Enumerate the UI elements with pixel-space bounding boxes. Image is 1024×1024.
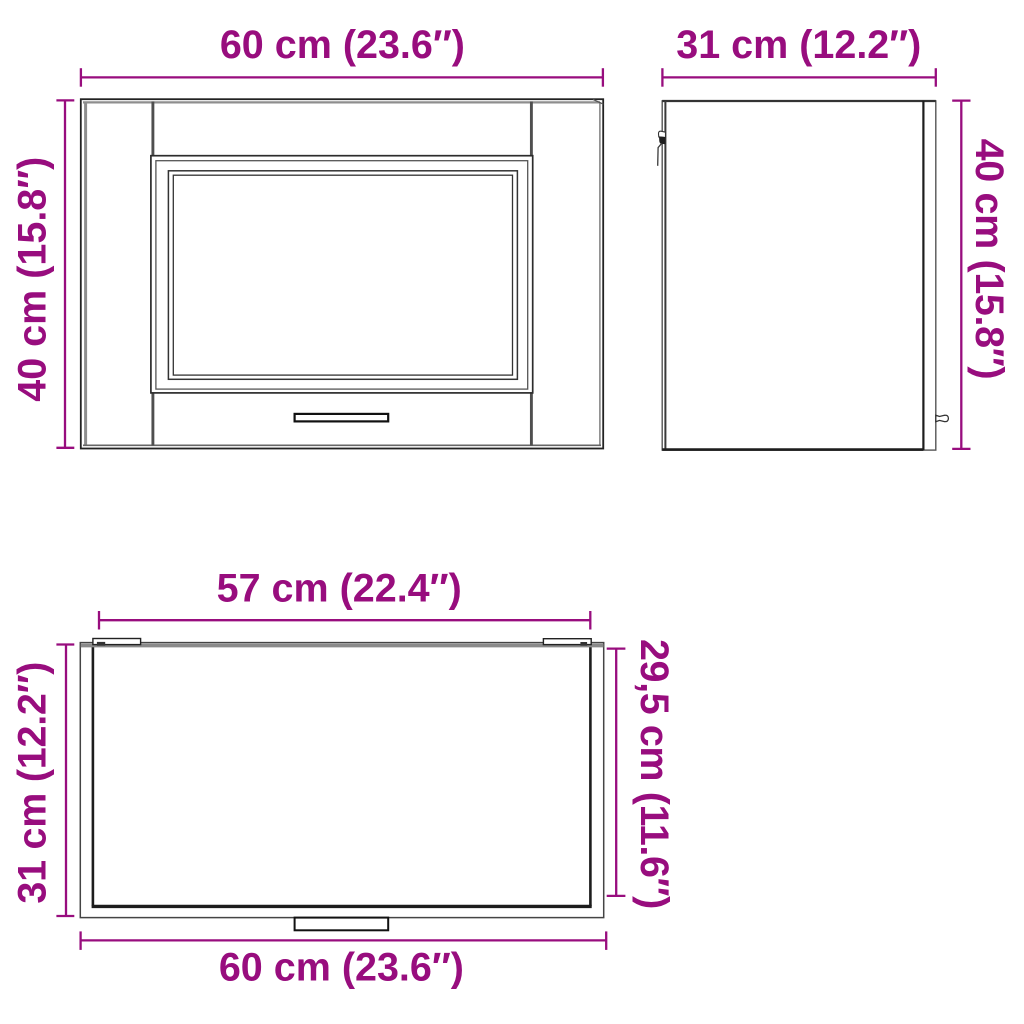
svg-text:31 cm (12.2″): 31 cm (12.2″) <box>676 23 921 67</box>
svg-text:40 cm (15.8″): 40 cm (15.8″) <box>967 139 1011 380</box>
svg-text:29,5 cm (11.6″): 29,5 cm (11.6″) <box>632 639 676 909</box>
svg-text:60 cm (23.6″): 60 cm (23.6″) <box>220 23 465 67</box>
svg-text:31 cm (12.2″): 31 cm (12.2″) <box>11 662 55 904</box>
svg-text:57 cm (22.4″): 57 cm (22.4″) <box>217 566 462 610</box>
svg-text:40 cm (15.8″): 40 cm (15.8″) <box>11 157 55 402</box>
svg-text:60 cm (23.6″): 60 cm (23.6″) <box>219 946 464 990</box>
